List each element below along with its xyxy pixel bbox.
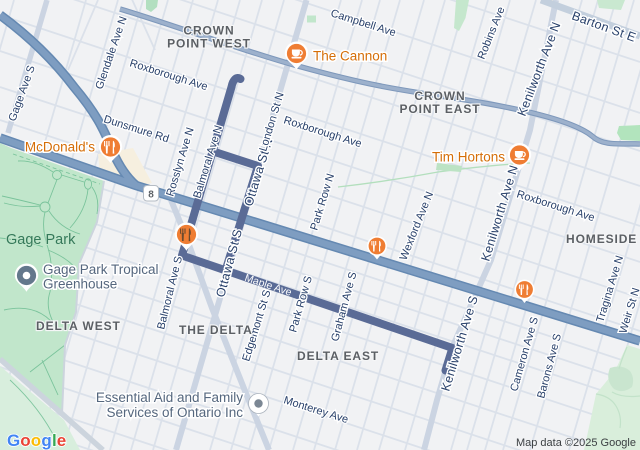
svg-text:DELTA EAST: DELTA EAST (297, 349, 379, 363)
svg-text:POINT EAST: POINT EAST (399, 102, 480, 116)
svg-text:Map data ©2025 Google: Map data ©2025 Google (516, 437, 636, 449)
svg-text:McDonald's: McDonald's (25, 140, 95, 155)
svg-text:G: G (7, 431, 20, 450)
svg-text:HOMESIDE: HOMESIDE (566, 232, 637, 246)
svg-text:o: o (31, 431, 41, 450)
svg-text:THE DELTA: THE DELTA (179, 323, 253, 337)
svg-text:CROWN: CROWN (183, 24, 234, 38)
svg-text:8: 8 (148, 190, 154, 201)
svg-text:e: e (57, 431, 66, 450)
svg-text:The Cannon: The Cannon (313, 49, 387, 64)
svg-text:Essential Aid and Family: Essential Aid and Family (96, 390, 243, 405)
svg-text:g: g (41, 431, 51, 450)
svg-text:Gage Park: Gage Park (6, 232, 76, 248)
svg-text:Greenhouse: Greenhouse (43, 277, 117, 292)
svg-text:DELTA WEST: DELTA WEST (36, 319, 121, 333)
svg-text:POINT WEST: POINT WEST (167, 37, 251, 51)
svg-text:CROWN: CROWN (414, 89, 465, 103)
svg-text:Tim Hortons: Tim Hortons (432, 150, 505, 165)
svg-text:Services of Ontario Inc: Services of Ontario Inc (106, 405, 243, 420)
svg-text:o: o (20, 431, 30, 450)
svg-text:Gage Park Tropical: Gage Park Tropical (43, 262, 159, 277)
